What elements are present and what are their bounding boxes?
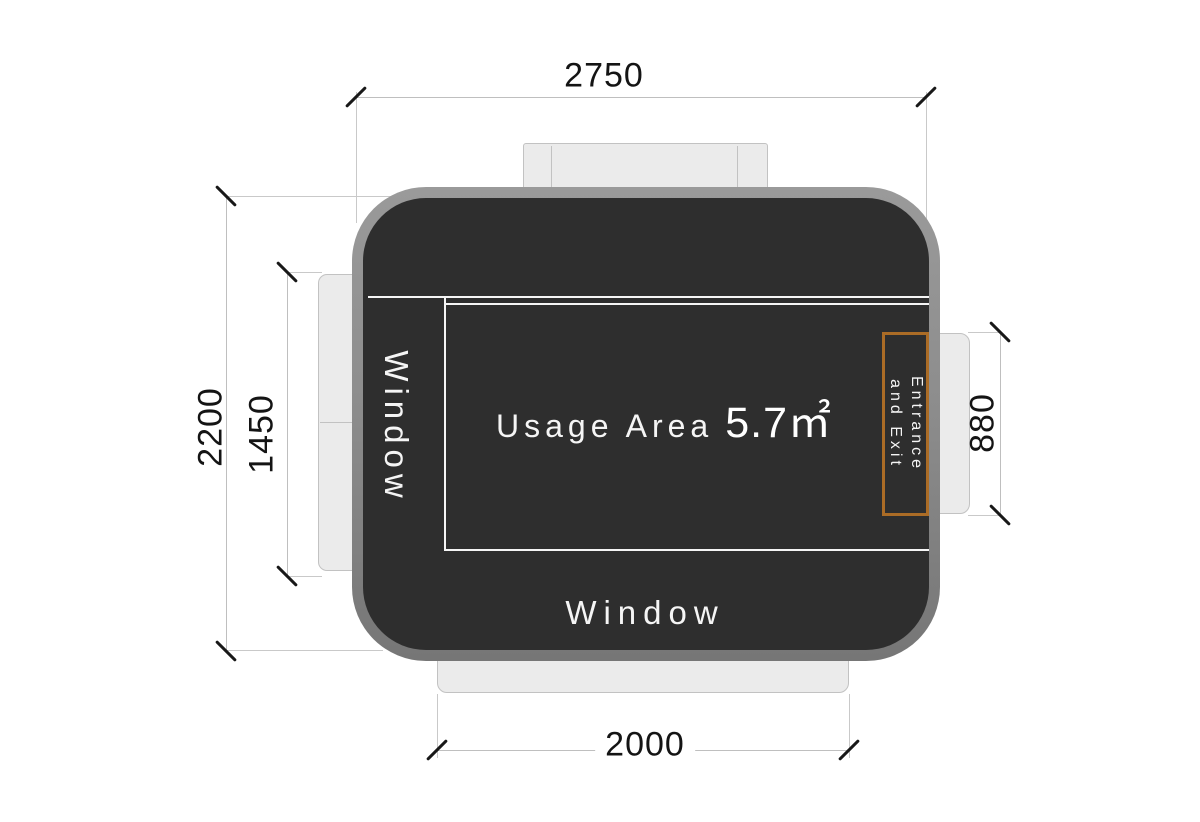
floor-plan-canvas: Usage Area 5.7㎡ Window Window Entrance a… (0, 0, 1200, 822)
dimension-overall-width: 2750 (564, 57, 644, 96)
dimension-door: 880 (964, 393, 1003, 453)
window-label-left: Window (377, 350, 415, 503)
dimension-window-left: 1450 (243, 394, 282, 474)
window-mullion (737, 146, 738, 188)
usage-area-line-top (444, 303, 929, 305)
window-mullion (320, 422, 354, 423)
window-label-bottom: Window (565, 594, 724, 632)
window-sill-left (318, 274, 356, 571)
usage-area-line-left (444, 296, 446, 551)
extension-line-window-left-bottom (287, 576, 322, 577)
usage-area-line-bottom (444, 549, 929, 551)
extension-line-width-right (926, 92, 927, 223)
extension-line-height-bottom (226, 650, 383, 651)
dimension-line-window-left (287, 272, 288, 576)
usage-area-label: Usage Area (496, 408, 713, 445)
window-sill-top (523, 143, 768, 191)
entrance-label-line2: and Exit (887, 379, 904, 469)
window-mullion (551, 146, 552, 188)
usage-area-group: Usage Area 5.7㎡ (496, 388, 832, 450)
dimension-line-overall-width (356, 97, 926, 98)
extension-line-door-bottom (968, 515, 1001, 516)
interior-line-top (368, 296, 929, 298)
dimension-overall-height: 2200 (192, 387, 231, 467)
usage-area-value: 5.7㎡ (725, 388, 832, 450)
extension-line-door-top (968, 332, 1001, 333)
dimension-window-bottom: 2000 (595, 726, 695, 765)
extension-line-window-left-top (287, 272, 322, 273)
extension-line-width-left (356, 92, 357, 223)
entrance-label: Entrance and Exit (885, 324, 927, 524)
entrance-label-line1: Entrance (908, 376, 925, 472)
